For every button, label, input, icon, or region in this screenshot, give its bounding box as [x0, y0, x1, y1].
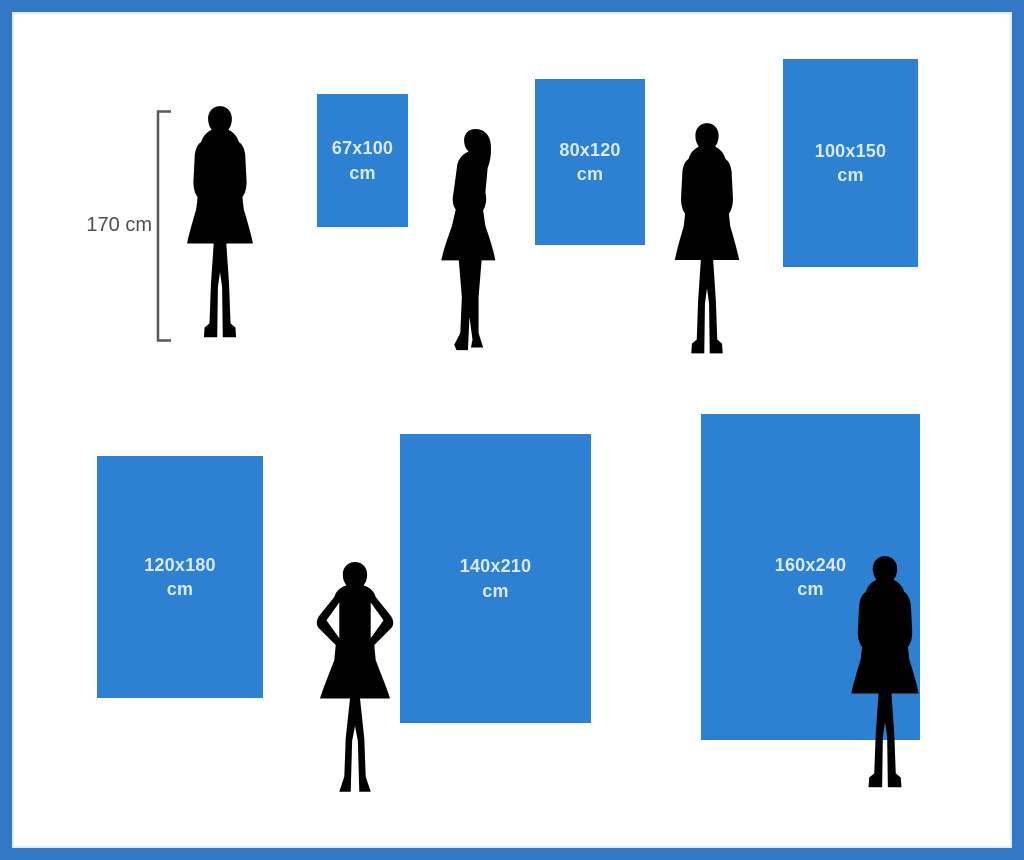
size-rect-80x120: 80x120 cm: [535, 79, 645, 245]
height-label: 170 cm: [86, 214, 152, 237]
size-dims: 67x100: [332, 136, 393, 160]
woman-silhouette-akimbo-icon: [305, 560, 405, 800]
size-unit: cm: [559, 162, 620, 186]
size-unit: cm: [332, 161, 393, 185]
size-label: 80x120 cm: [559, 138, 620, 187]
size-label: 160x240 cm: [775, 553, 846, 602]
size-rect-140x210: 140x210 cm: [400, 434, 591, 723]
size-label: 67x100 cm: [332, 136, 393, 185]
size-dims: 160x240: [775, 553, 846, 577]
size-dims: 140x210: [460, 554, 531, 578]
woman-silhouette-icon: [666, 121, 748, 363]
woman-silhouette-icon: [178, 104, 262, 347]
size-dims: 100x150: [815, 139, 886, 163]
size-rect-67x100: 67x100 cm: [317, 94, 408, 227]
size-dims: 80x120: [559, 138, 620, 162]
size-unit: cm: [460, 579, 531, 603]
size-dims: 120x180: [144, 553, 215, 577]
size-unit: cm: [775, 577, 846, 601]
size-unit: cm: [815, 163, 886, 187]
size-label: 120x180 cm: [144, 553, 215, 602]
woman-silhouette-side-icon: [436, 127, 512, 358]
woman-silhouette-icon: [842, 554, 928, 797]
size-label: 140x210 cm: [460, 554, 531, 603]
size-rect-100x150: 100x150 cm: [783, 59, 918, 267]
size-label: 100x150 cm: [815, 139, 886, 188]
height-bracket-icon: [156, 110, 172, 342]
size-comparison-diagram: 170 cm 67x100 cm 80x120 cm 100x150 cm 12…: [0, 0, 1024, 860]
size-rect-120x180: 120x180 cm: [97, 456, 263, 698]
size-unit: cm: [144, 577, 215, 601]
